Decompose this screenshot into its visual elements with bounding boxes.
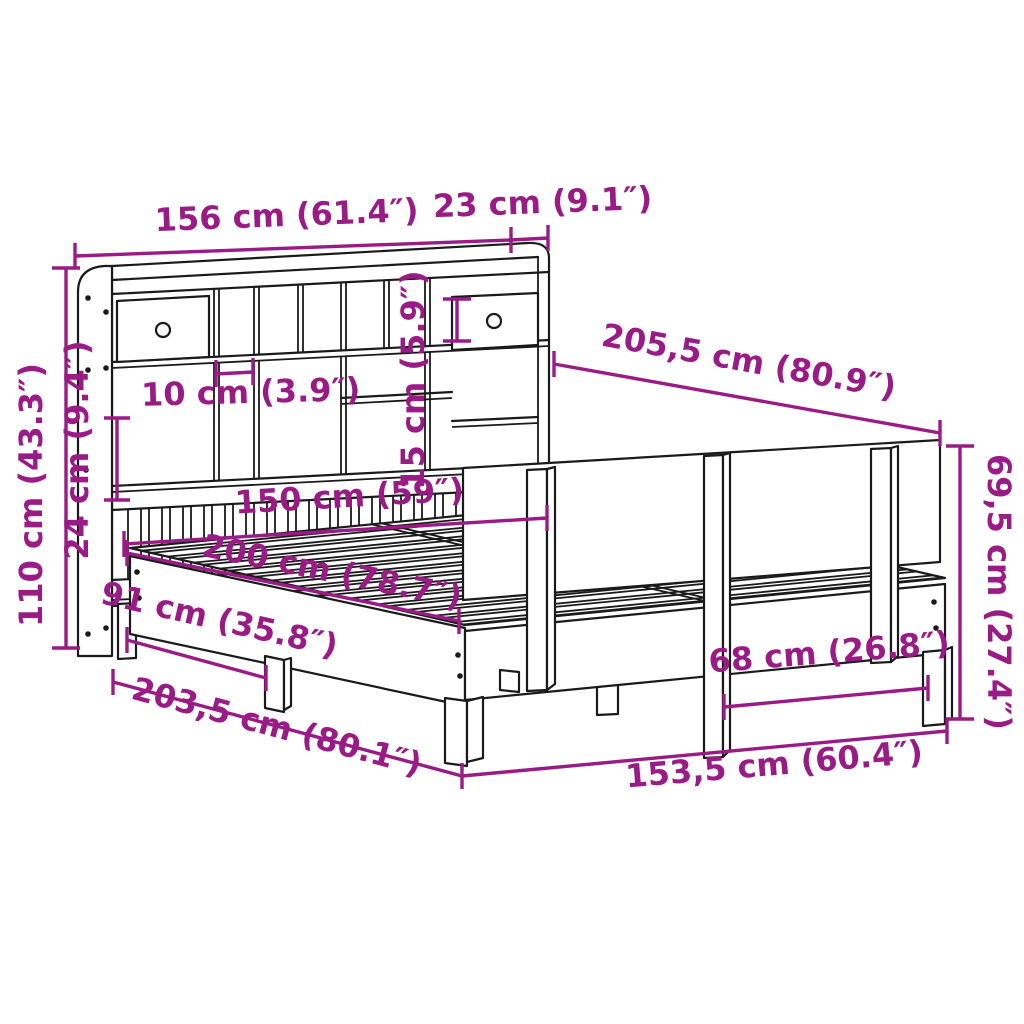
dim-foot-width: 153,5 cm (60.4″) — [624, 733, 924, 796]
dim-slat-panel-height: 24 cm (9.4″) — [58, 340, 96, 559]
dim-headboard-height: 110 cm (43.3″) — [12, 363, 50, 627]
small-foot — [500, 670, 519, 692]
panel-post-2 — [704, 453, 730, 758]
dim-side-panel-height: 69,5 cm (27.4″) — [980, 454, 1018, 730]
diagram-stage: 156 cm (61.4″) 23 cm (9.1″) 205,5 cm (80… — [0, 0, 1024, 1024]
dim-shelf-depth: 23 cm (9.1″) — [432, 179, 653, 225]
bed-dimension-diagram: 156 cm (61.4″) 23 cm (9.1″) 205,5 cm (80… — [0, 0, 1024, 1024]
front-foot-leg — [445, 698, 467, 766]
panel-post-1 — [527, 467, 555, 691]
dim-compartment-width: 10 cm (3.9″) — [141, 370, 361, 414]
dim-headboard-width: 156 cm (61.4″) — [154, 191, 419, 239]
dim-compartment-height: 15 cm (5.9″) — [394, 270, 432, 489]
dim-total-length-top: 205,5 cm (80.9″) — [599, 316, 899, 407]
left-drawer — [117, 296, 209, 362]
